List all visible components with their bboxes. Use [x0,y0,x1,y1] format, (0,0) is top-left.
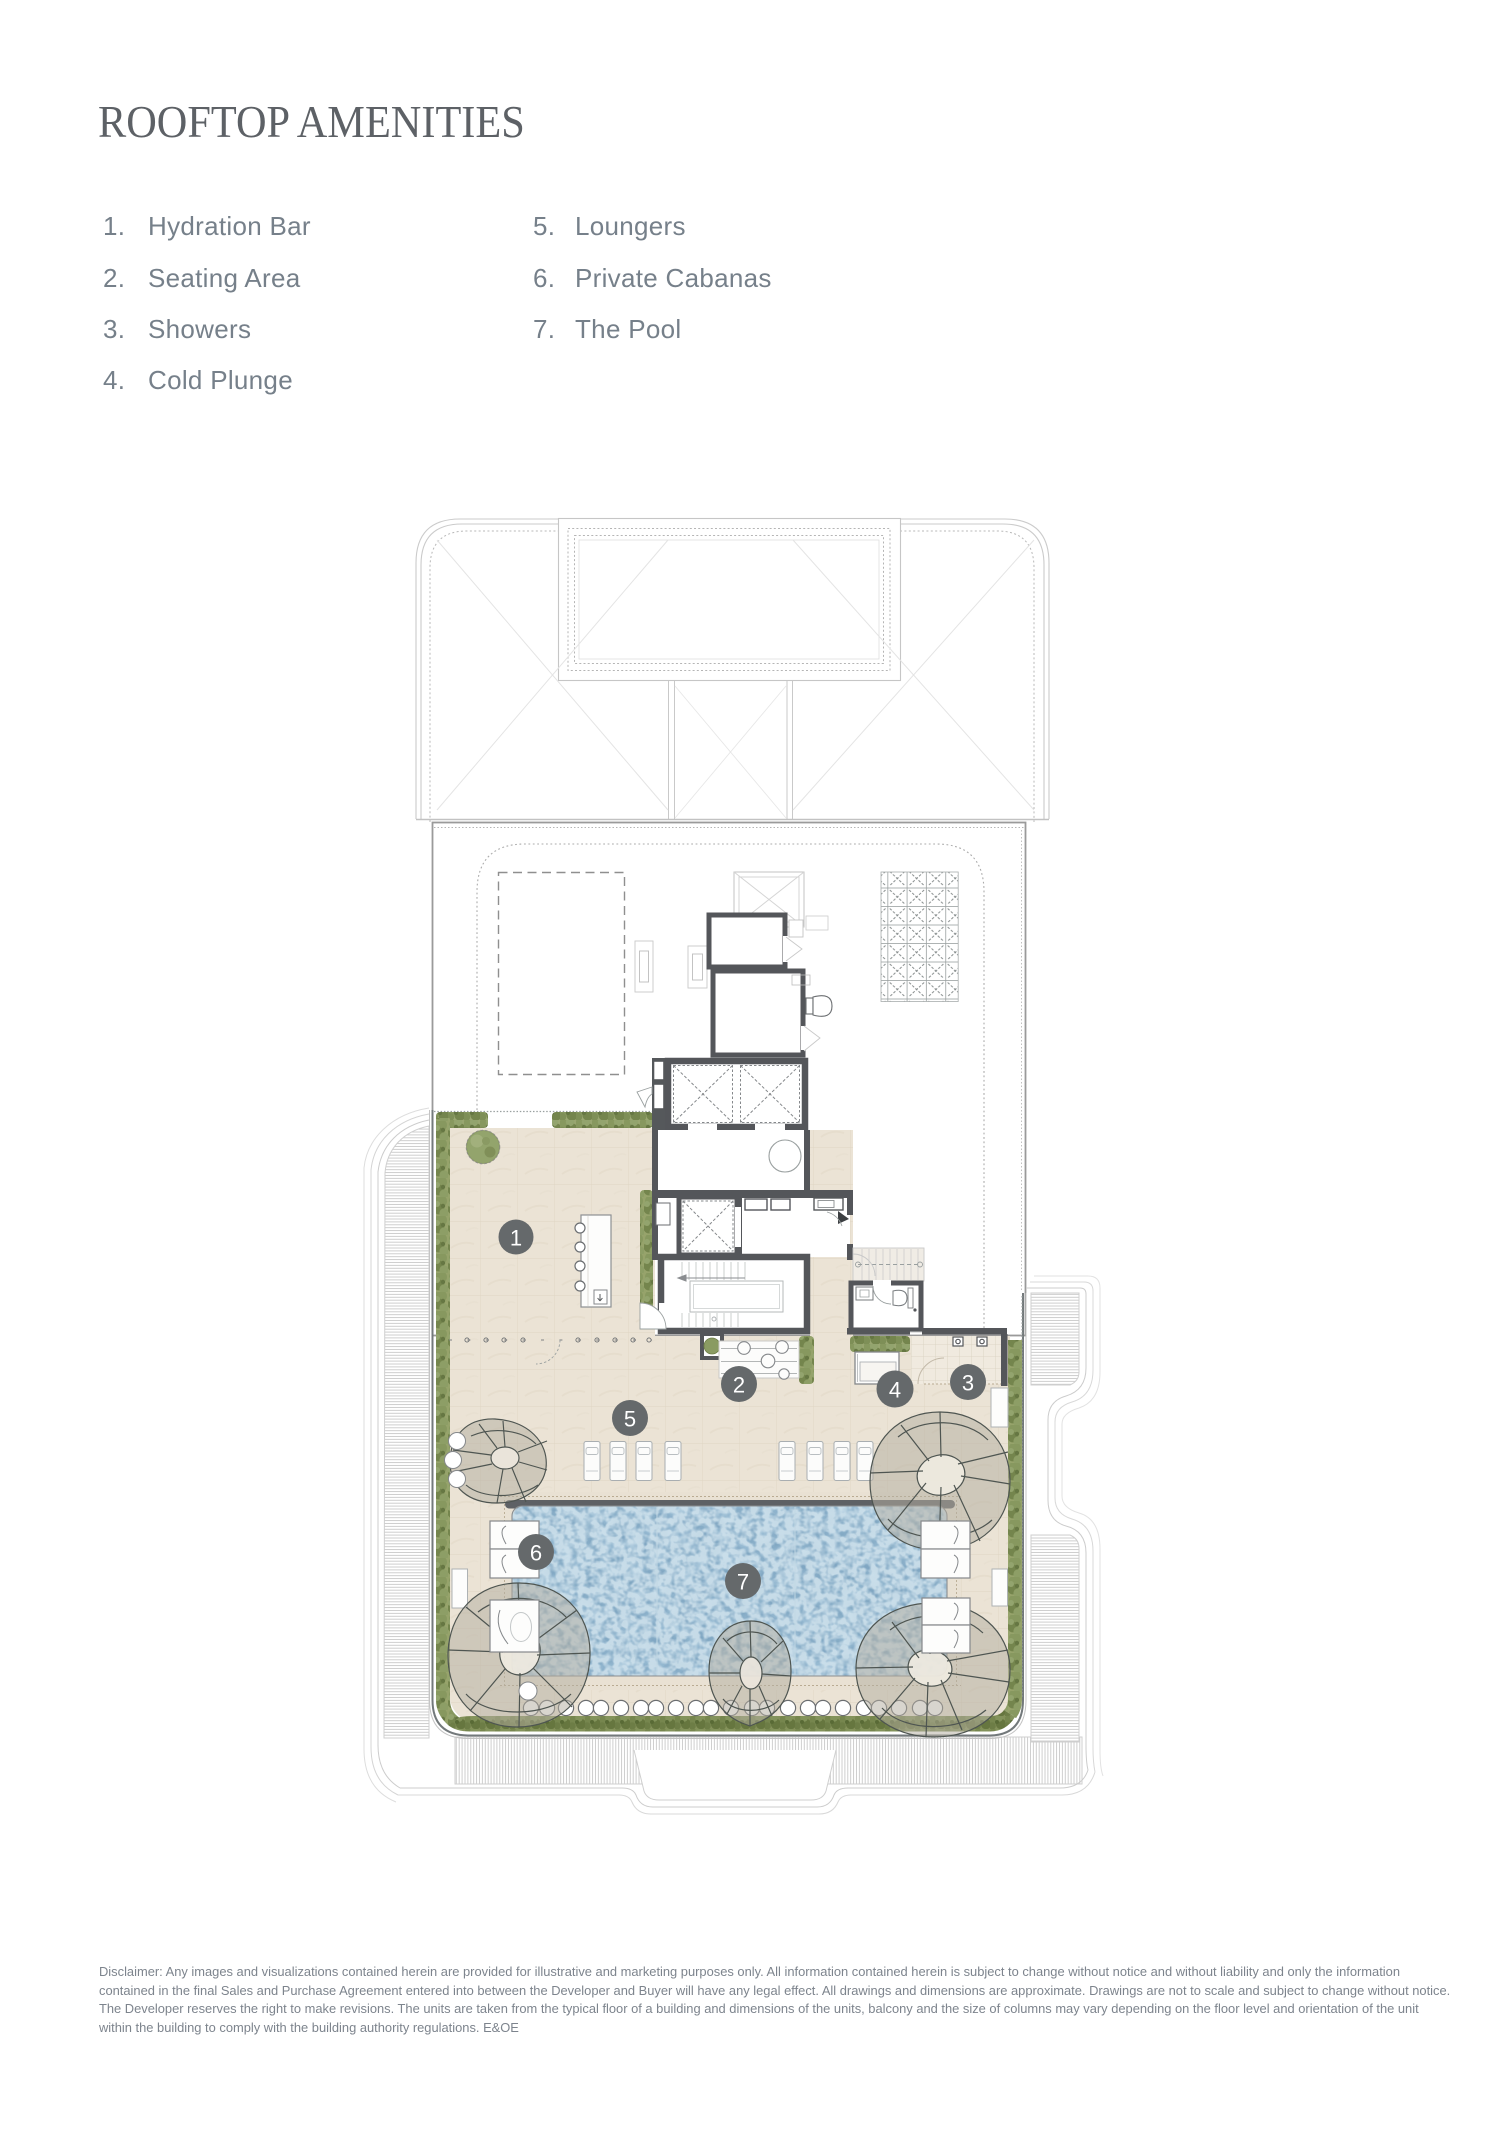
svg-text:5: 5 [624,1407,636,1432]
svg-text:4: 4 [889,1378,901,1403]
svg-text:6: 6 [530,1541,542,1566]
svg-text:7: 7 [737,1570,749,1595]
svg-text:1: 1 [510,1226,522,1251]
svg-text:2: 2 [733,1373,745,1398]
svg-text:3: 3 [962,1371,974,1396]
